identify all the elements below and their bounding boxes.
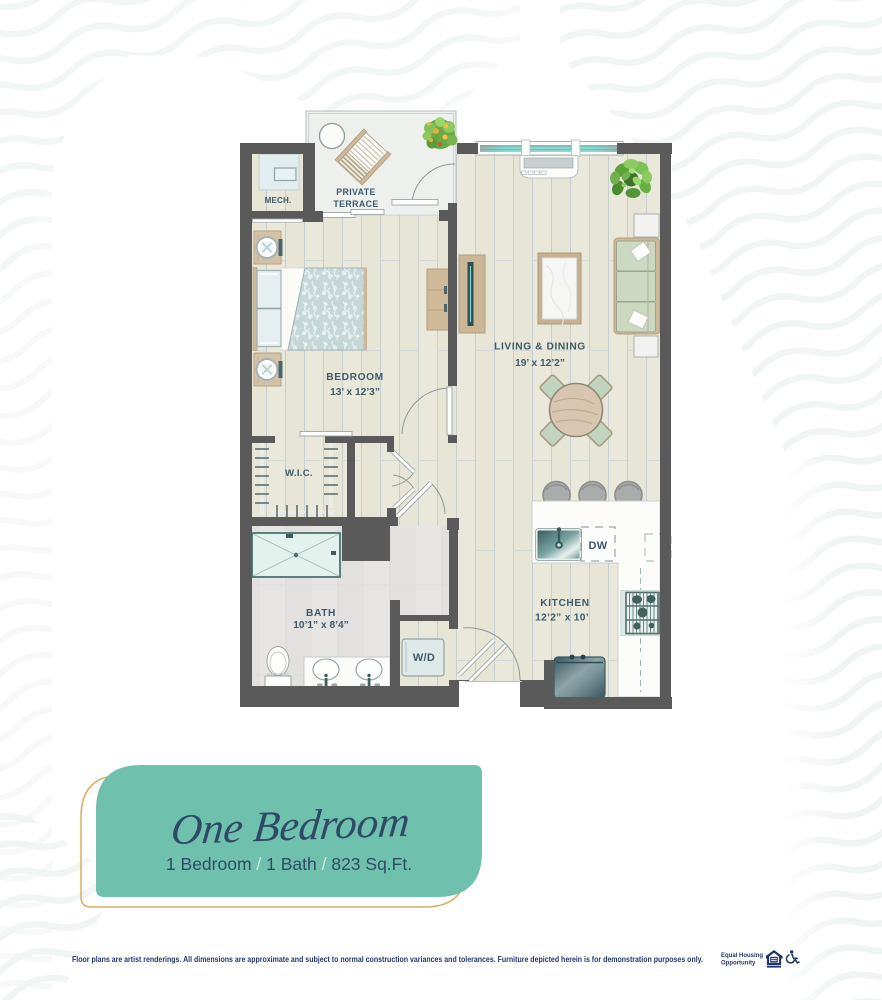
svg-text:Floor plans are artist renderi: Floor plans are artist renderings. All d… xyxy=(72,954,703,964)
svg-text:One Bedroom: One Bedroom xyxy=(169,798,412,854)
svg-text:Opportunity: Opportunity xyxy=(721,960,756,966)
svg-text:Equal Housing: Equal Housing xyxy=(721,953,763,959)
svg-text:1 Bedroom / 1 Bath / 823 Sq.: 1 Bedroom / 1 Bath / 823 Sq.Ft. xyxy=(166,854,412,874)
